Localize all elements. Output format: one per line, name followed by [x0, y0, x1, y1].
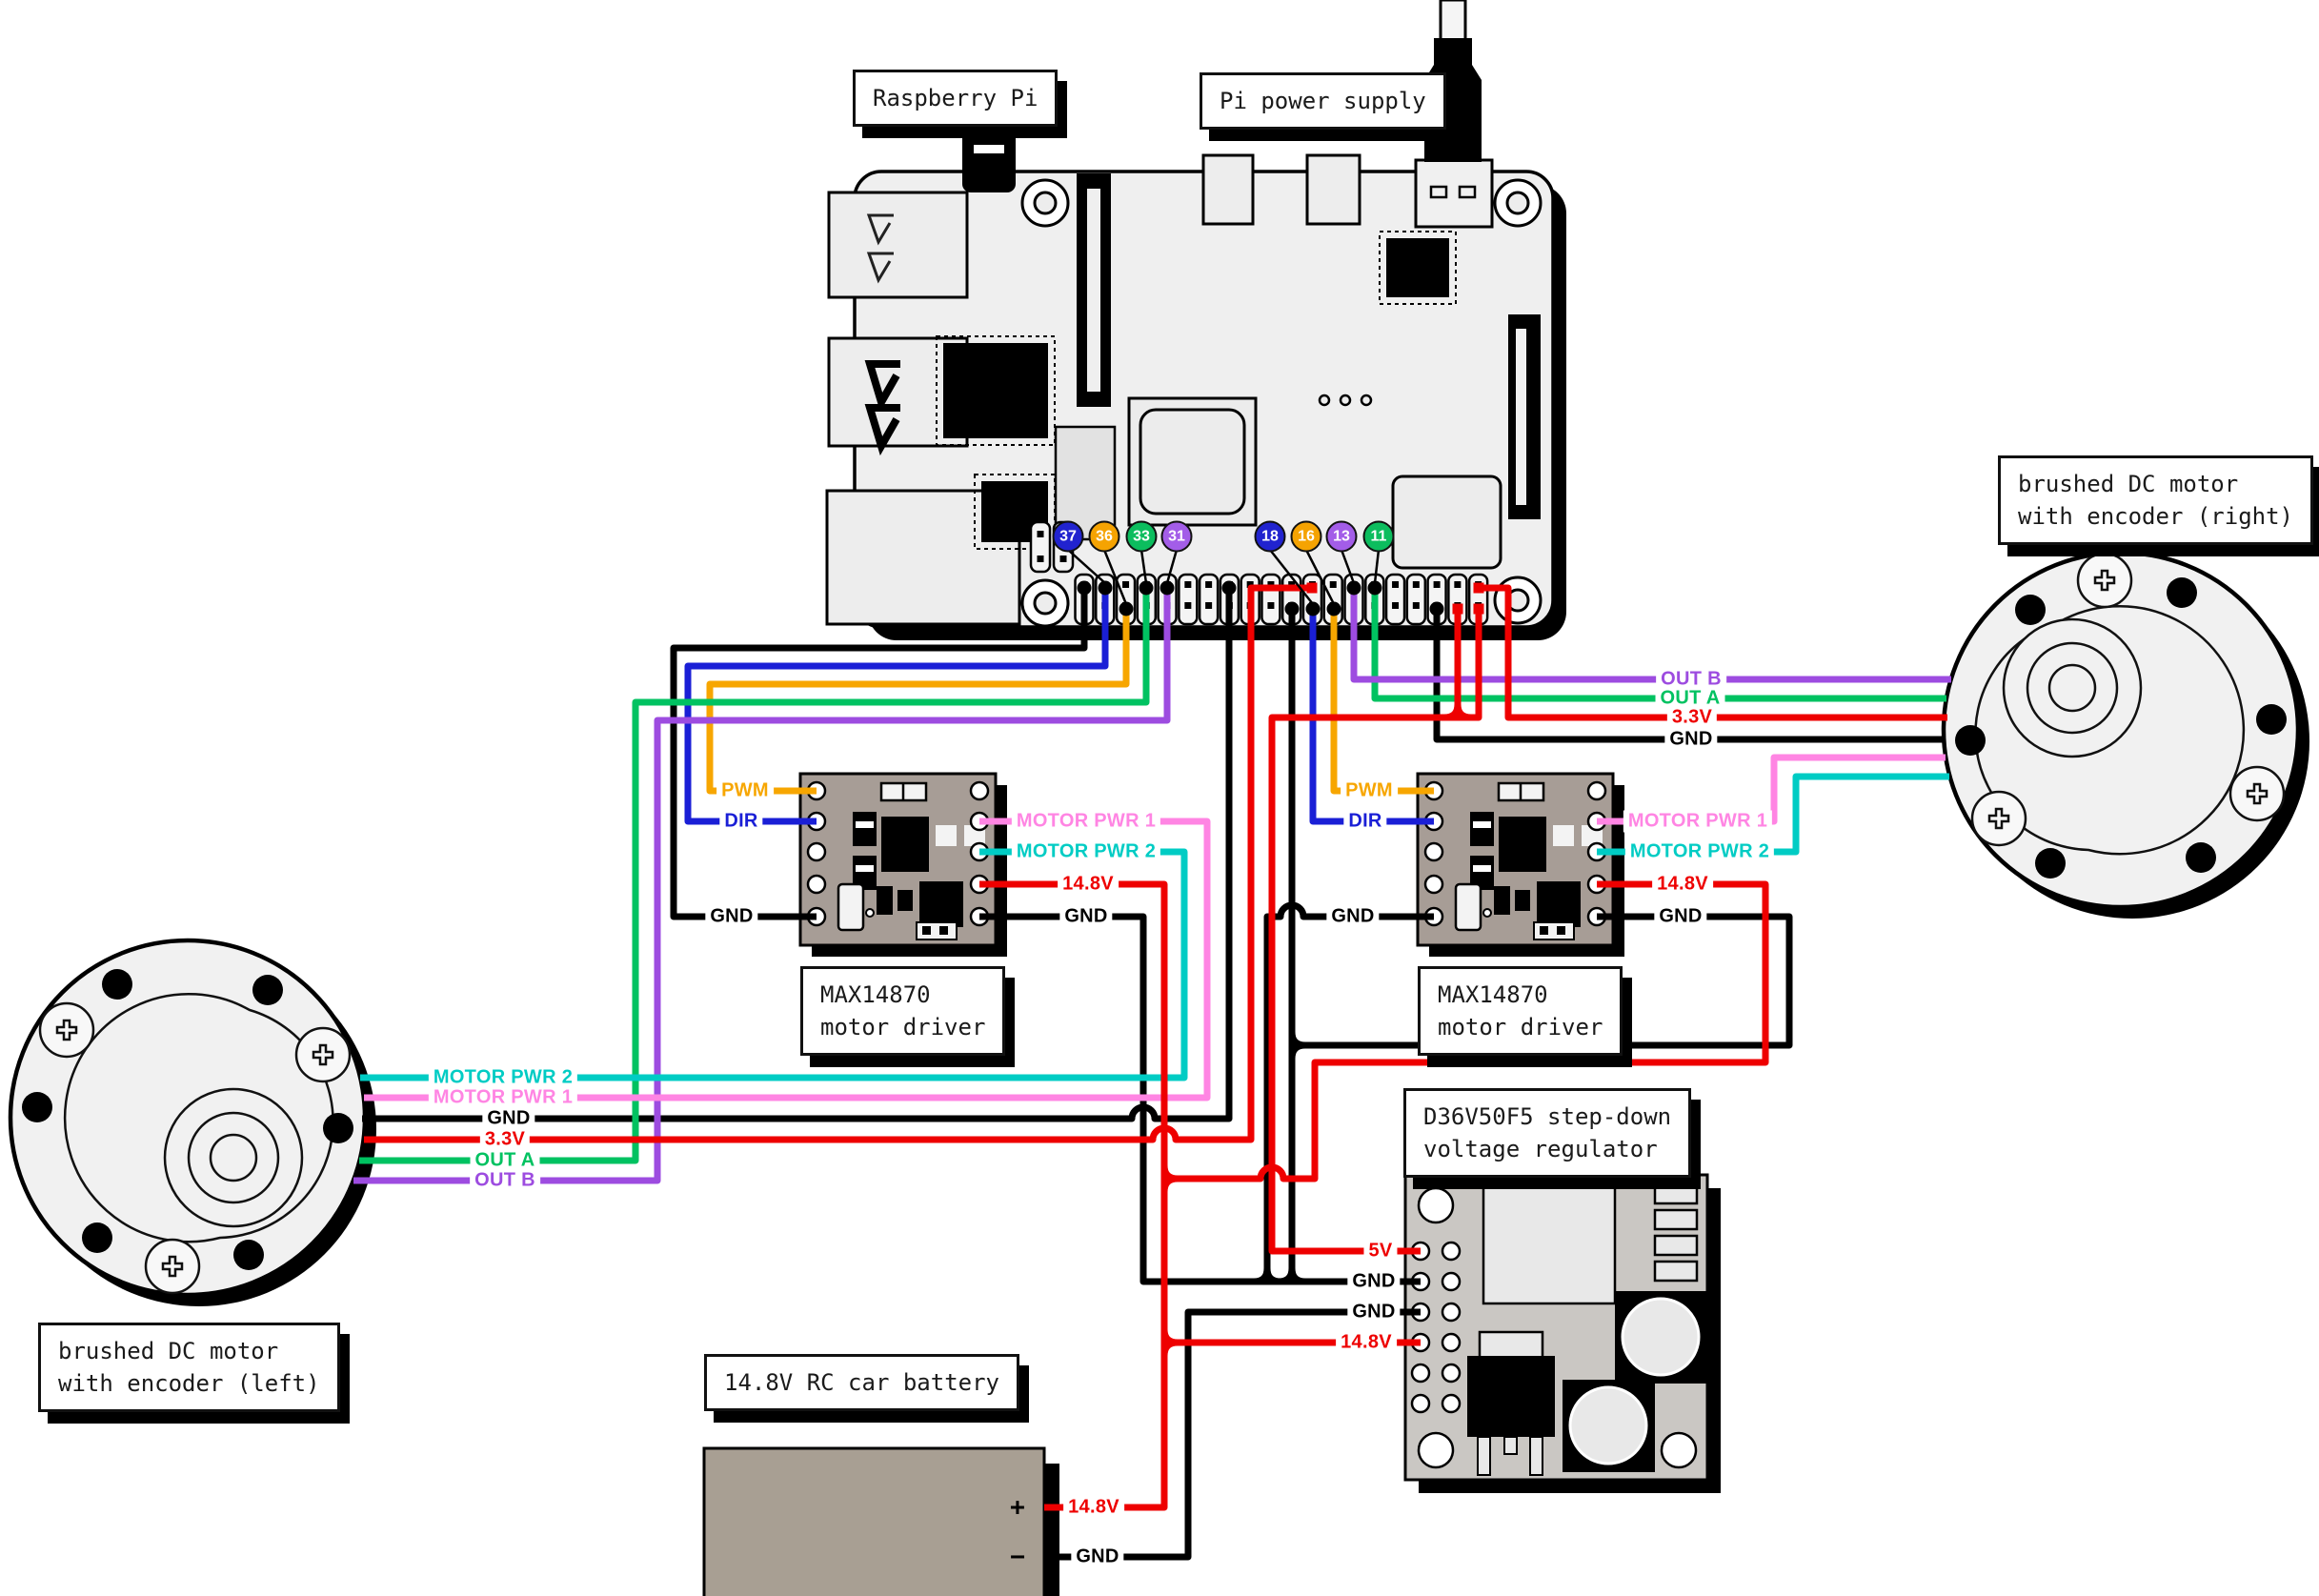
- label-line: MAX14870: [820, 979, 985, 1011]
- battery-label-text: 14.8V RC car battery: [724, 1369, 999, 1396]
- wire-label-gnd-right-in: GND: [1326, 906, 1379, 928]
- wire-label-gnd-right-out: GND: [1654, 906, 1706, 928]
- wire-label-reg-gnd-1: GND: [1347, 1271, 1400, 1293]
- badge-number: 31: [1168, 528, 1185, 545]
- gnd-junction-fillets: [1254, 1032, 1305, 1282]
- regulator-label: D36V50F5 step-down voltage regulator: [1403, 1088, 1691, 1178]
- battery-label: 14.8V RC car battery: [704, 1354, 1019, 1411]
- wire-label-dir-right: DIR: [1343, 811, 1386, 833]
- ram-chip: [943, 343, 1048, 438]
- wire-label-motor-pwr-2-motor-left: MOTOR PWR 2: [429, 1067, 577, 1089]
- wire-label-gnd-left-in: GND: [705, 906, 757, 928]
- label-line: with encoder (right): [2018, 500, 2293, 533]
- gpio-badge-13: 13: [1326, 521, 1358, 553]
- wire-label-gnd-motor-left: GND: [482, 1108, 534, 1130]
- motor-right: [1944, 553, 2309, 919]
- wire-label-14v8-right: 14.8V: [1652, 874, 1713, 896]
- motor-driver-right-board: [1418, 774, 1624, 957]
- wire-label-battery-gnd: GND: [1071, 1546, 1123, 1568]
- wire-label-pwm-right: PWM: [1341, 780, 1398, 802]
- badge-number: 33: [1133, 528, 1150, 545]
- badge-number: 36: [1096, 528, 1113, 545]
- pi-power-supply-label: Pi power supply: [1200, 72, 1446, 130]
- gpio-badge-18: 18: [1255, 521, 1286, 553]
- gpio-badge-31: 31: [1161, 521, 1193, 553]
- motor-shaft: [2049, 665, 2095, 711]
- battery: [704, 1448, 1059, 1596]
- wire-label-motor-pwr-2-left: MOTOR PWR 2: [1012, 841, 1160, 863]
- wire-label-gnd-left-out: GND: [1059, 906, 1112, 928]
- inductor: [1483, 1186, 1615, 1303]
- wire-label-motor-pwr-1-motor-left: MOTOR PWR 1: [429, 1087, 577, 1109]
- gpio-badge-33: 33: [1126, 521, 1158, 553]
- motor-left-label: brushed DC motor with encoder (left): [38, 1323, 340, 1412]
- gpio-badge-16: 16: [1291, 521, 1322, 553]
- wire-label-out-a-left: OUT A: [471, 1150, 540, 1172]
- label-line: motor driver: [820, 1011, 985, 1043]
- wire-label-gnd-motor-right: GND: [1664, 729, 1717, 751]
- wire-motor-pwr-1-left: [364, 821, 1207, 1098]
- label-line: motor driver: [1438, 1011, 1603, 1043]
- badge-number: 13: [1333, 528, 1350, 545]
- wiring-diagram: Raspberry Pi Pi power supply MAX14870 mo…: [0, 0, 2319, 1596]
- motor-shaft: [211, 1135, 256, 1181]
- wire-label-pwm-left: PWM: [716, 780, 774, 802]
- wire-label-battery-14v8: 14.8V: [1063, 1497, 1124, 1519]
- display-connector: [1077, 173, 1111, 407]
- motor-driver-right-label: MAX14870 motor driver: [1418, 966, 1623, 1056]
- pi-power-supply-label-text: Pi power supply: [1220, 88, 1426, 114]
- soc-chip: [1129, 398, 1256, 525]
- label-line: with encoder (left): [58, 1367, 320, 1400]
- label-line: D36V50F5 step-down: [1423, 1101, 1671, 1133]
- wire-label-dir-left: DIR: [719, 811, 762, 833]
- label-line: MAX14870: [1438, 979, 1603, 1011]
- capacitor-1: [1615, 1291, 1707, 1384]
- badge-number: 11: [1371, 528, 1387, 545]
- motor-right-label: brushed DC motor with encoder (right): [1998, 455, 2313, 545]
- regulator-ic: [1467, 1332, 1555, 1475]
- wire-label-14v8-left: 14.8V: [1058, 874, 1119, 896]
- gpio-badge-11: 11: [1363, 521, 1395, 553]
- label-line: brushed DC motor: [58, 1335, 320, 1367]
- wire-label-3v3-left: 3.3V: [480, 1129, 530, 1151]
- capacitor-2: [1563, 1380, 1655, 1472]
- badge-number: 37: [1059, 528, 1077, 545]
- label-line: brushed DC motor: [2018, 468, 2293, 500]
- wire-label-motor-pwr-1-left: MOTOR PWR 1: [1012, 811, 1160, 833]
- label-line: voltage regulator: [1423, 1133, 1671, 1165]
- raspberry-pi-label: Raspberry Pi: [853, 70, 1058, 127]
- battery-positive-terminal: +: [1010, 1493, 1025, 1522]
- diagram-artwork: [0, 0, 2319, 1596]
- wire-label-motor-pwr-2-right: MOTOR PWR 2: [1625, 841, 1774, 863]
- gpio-badge-37: 37: [1053, 521, 1084, 553]
- motor-driver-left-label: MAX14870 motor driver: [800, 966, 1005, 1056]
- badge-number: 16: [1298, 528, 1315, 545]
- micro-hdmi-port-0: [1203, 155, 1253, 224]
- wire-label-5v: 5V: [1363, 1241, 1397, 1263]
- wire-label-out-b-left: OUT B: [470, 1170, 540, 1192]
- usb-c-power-port: [1416, 160, 1492, 227]
- battery-negative-terminal: −: [1010, 1543, 1025, 1571]
- gpio-badge-36: 36: [1089, 521, 1120, 553]
- micro-hdmi-port-1: [1307, 155, 1360, 224]
- motor-left: [10, 940, 376, 1306]
- voltage-regulator-board: [1405, 1175, 1721, 1493]
- wire-14v8-trunk-battery: [979, 884, 1164, 1507]
- badge-number: 18: [1261, 528, 1279, 545]
- wire-label-reg-14v8: 14.8V: [1336, 1332, 1397, 1354]
- wire-label-reg-gnd-2: GND: [1347, 1302, 1400, 1323]
- motor-driver-left-board: [800, 774, 1007, 957]
- camera-connector: [1508, 314, 1541, 519]
- usb-port-stack-top: [829, 192, 967, 297]
- network-chip: [1386, 238, 1449, 297]
- raspberry-pi-label-text: Raspberry Pi: [873, 85, 1038, 111]
- wifi-module: [1393, 476, 1501, 568]
- wire-label-3v3-right: 3.3V: [1667, 707, 1717, 729]
- wire-label-motor-pwr-1-right: MOTOR PWR 1: [1623, 811, 1772, 833]
